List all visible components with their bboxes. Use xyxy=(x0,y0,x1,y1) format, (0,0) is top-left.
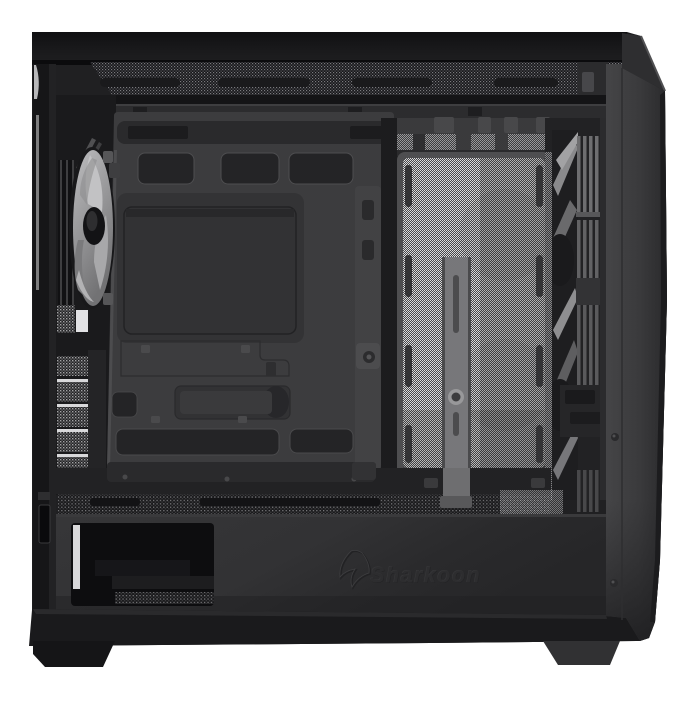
svg-text:Sharkoon: Sharkoon xyxy=(370,563,481,588)
